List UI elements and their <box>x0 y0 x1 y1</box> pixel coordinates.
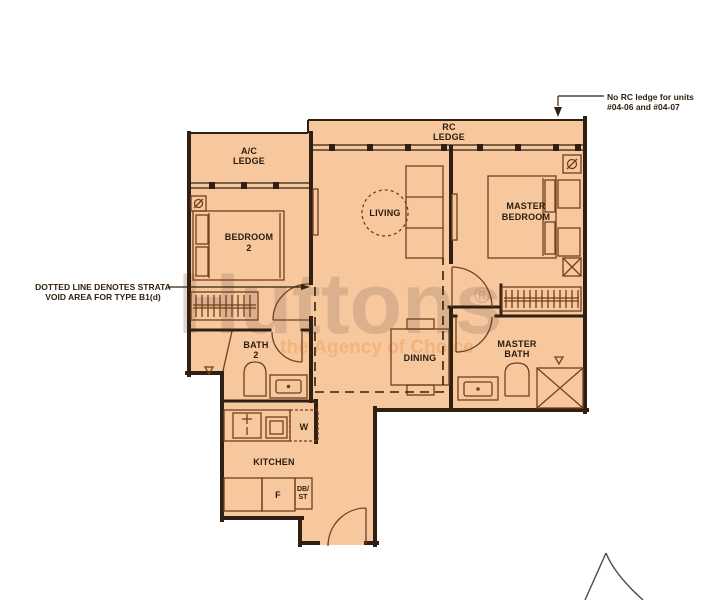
corner-outline-shape <box>585 553 643 600</box>
label-master-bedroom2: BEDROOM <box>502 212 550 222</box>
rc-note-line1: No RC ledge for units <box>607 92 694 102</box>
label-db: DB/ <box>297 486 309 493</box>
label-master-bedroom: MASTER <box>506 201 546 211</box>
label-ac-ledge: A/C <box>241 146 257 156</box>
label-rc-ledge: RC <box>442 122 456 132</box>
registered-mark-icon: ® <box>474 283 490 308</box>
label-washer: W <box>300 422 309 432</box>
label-bath2-num: 2 <box>253 350 258 360</box>
label-kitchen: KITCHEN <box>253 457 294 467</box>
label-st: ST <box>299 494 309 501</box>
label-ac-ledge2: LEDGE <box>233 156 265 166</box>
label-bedroom2-num: 2 <box>246 243 251 253</box>
label-master-bath: MASTER <box>497 339 537 349</box>
label-master-bath2: BATH <box>504 349 529 359</box>
rc-note-line2: #04-06 and #04-07 <box>607 102 680 112</box>
wall-panel-left <box>313 189 318 235</box>
label-bath2: BATH <box>243 340 268 350</box>
label-fridge: F <box>275 490 281 500</box>
floor-plan-drawing: Huttons ® the Agency of Choice <box>0 0 704 600</box>
label-living: LIVING <box>369 208 400 218</box>
annotation-rc-ledge: No RC ledge for units #04-06 and #04-07 <box>554 92 694 117</box>
rc-leader-line <box>558 96 604 106</box>
rc-leader-arrow-icon <box>554 107 562 117</box>
wall-panel-right <box>452 194 457 240</box>
label-rc-ledge2: LEDGE <box>433 132 465 142</box>
label-dining: DINING <box>404 353 437 363</box>
strata-note-line1: DOTTED LINE DENOTES STRATA <box>35 282 171 292</box>
label-bedroom2: BEDROOM <box>225 232 273 242</box>
strata-note-line2: VOID AREA FOR TYPE B1(d) <box>45 292 161 302</box>
floor-plan-page: Huttons ® the Agency of Choice <box>0 0 704 600</box>
